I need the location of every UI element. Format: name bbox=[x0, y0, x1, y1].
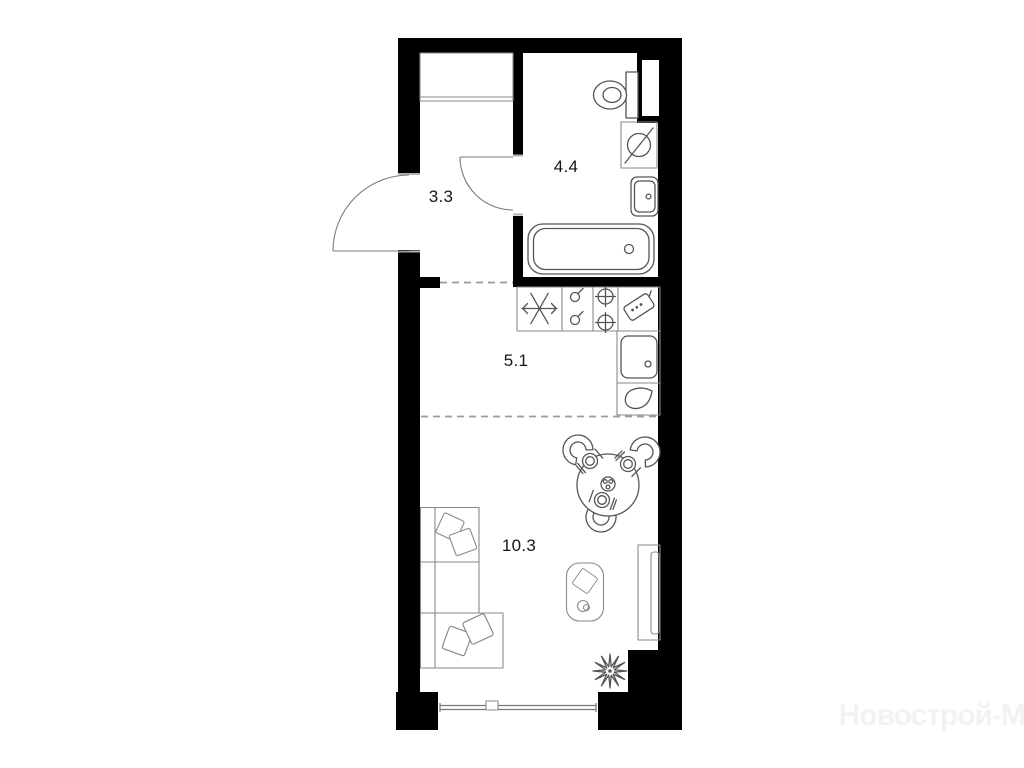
room-label-kitchen: 5.1 bbox=[504, 351, 529, 371]
walls bbox=[396, 38, 682, 730]
tv-stand bbox=[638, 545, 660, 640]
plant bbox=[593, 654, 627, 688]
room-label-bathroom: 4.4 bbox=[554, 157, 579, 177]
zone-dividers bbox=[421, 283, 658, 417]
room-label-hallway: 3.3 bbox=[429, 187, 454, 207]
pillow bbox=[572, 568, 598, 594]
kitchen-sink bbox=[621, 336, 657, 378]
bathtub bbox=[528, 224, 654, 274]
toilet bbox=[594, 72, 639, 118]
balcony-window bbox=[440, 701, 596, 712]
room-label-living-room: 10.3 bbox=[502, 536, 536, 556]
bathroom-sink bbox=[631, 177, 658, 216]
ventilation-shaft bbox=[642, 60, 659, 116]
wardrobe bbox=[420, 53, 513, 101]
floor-plan-drawing bbox=[0, 0, 1024, 768]
window-handle bbox=[486, 701, 498, 710]
cutting-board-icon bbox=[623, 290, 659, 321]
watermark: Новострой-М bbox=[831, 699, 1024, 733]
entrance-door bbox=[333, 174, 420, 252]
washing-machine bbox=[621, 122, 657, 168]
armchair bbox=[567, 563, 604, 621]
dining-table bbox=[557, 429, 666, 535]
sofa bbox=[421, 508, 504, 669]
fridge-icon bbox=[522, 293, 557, 323]
kettle-icon bbox=[625, 388, 652, 408]
floor-plan-canvas: 3.3 4.4 5.1 10.3 Новострой-М bbox=[0, 0, 1024, 768]
bathroom-door bbox=[460, 156, 523, 215]
